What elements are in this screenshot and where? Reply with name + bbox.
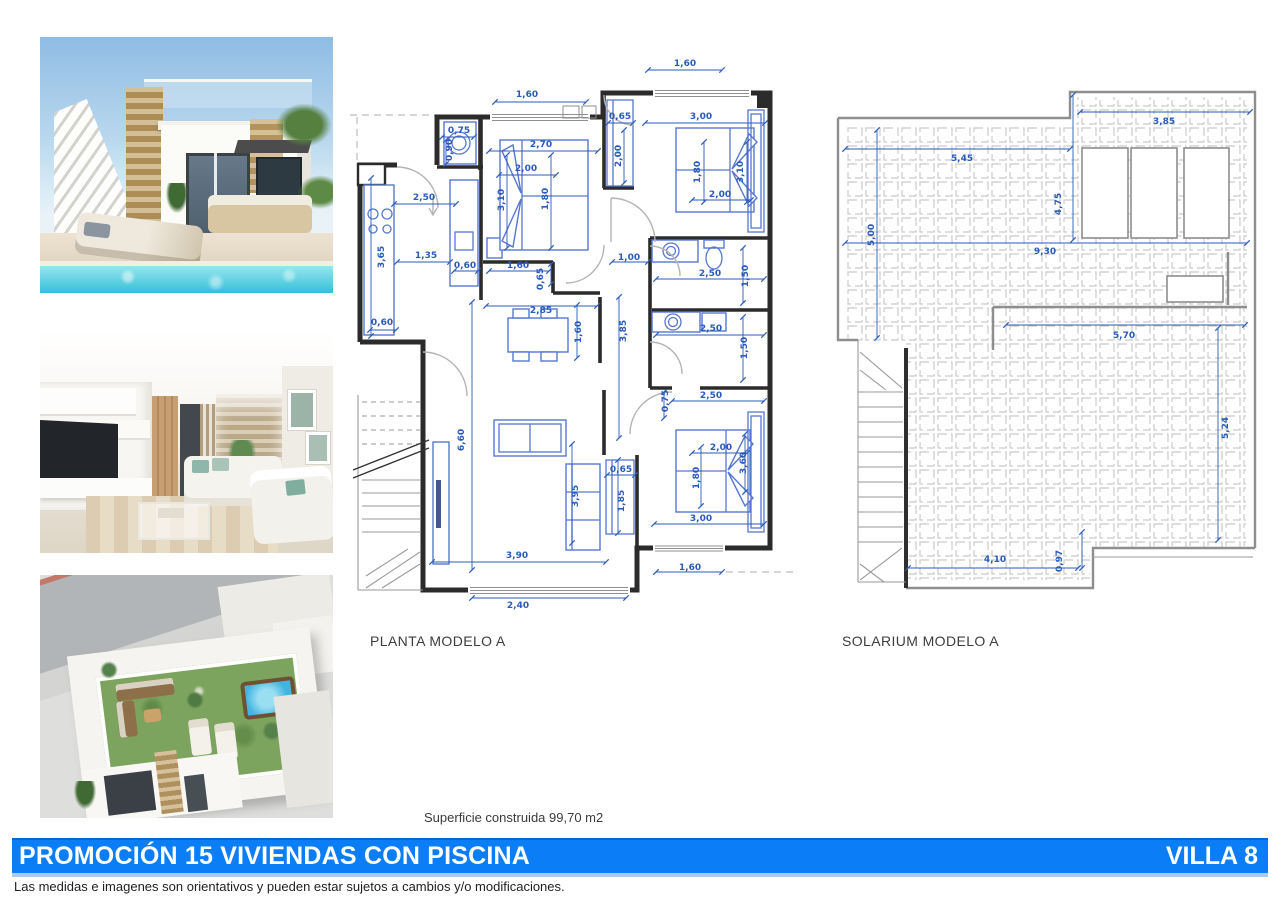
dimension-label: 0,60 — [454, 261, 476, 271]
pergola-panel — [1131, 148, 1177, 238]
window — [104, 770, 157, 816]
chimney-box — [1167, 276, 1223, 302]
dimension-label: 1,60 — [574, 321, 584, 343]
dimension-label: 0,75 — [448, 126, 470, 136]
sofa — [494, 420, 566, 456]
door — [184, 774, 208, 812]
dimension-label: 3,85 — [619, 320, 629, 342]
ledge-mask — [1090, 549, 1253, 583]
dimension-label: 2,50 — [413, 193, 435, 203]
pillow — [83, 221, 111, 238]
corner-pillar — [757, 93, 771, 108]
pergola-panel — [1184, 148, 1229, 238]
solarium-plan: 3,855,454,755,009,305,705,244,100,97 — [830, 80, 1275, 610]
pillow — [285, 479, 305, 496]
dimension-label: 1,80 — [693, 161, 703, 183]
dimension-label: 2,00 — [614, 145, 624, 167]
dimension-label: 4,75 — [1054, 193, 1064, 215]
dimension-label: 3,00 — [690, 514, 712, 524]
dimension-label: 2,00 — [709, 190, 731, 200]
dimension-label: 1,60 — [507, 261, 529, 271]
wood-panel — [152, 396, 178, 506]
dimension-label: 2,85 — [530, 306, 552, 316]
photo-villa-exterior-pool — [40, 37, 333, 293]
dimension-label: 1,80 — [541, 188, 551, 210]
planta-title: PLANTA MODELO A — [370, 633, 506, 649]
dimension-label: 3,00 — [690, 112, 712, 122]
dimension-label: 9,30 — [1034, 247, 1056, 257]
dimension-label: 0,90 — [445, 139, 455, 161]
dimension-label: 3,95 — [571, 485, 581, 507]
plant — [100, 661, 118, 679]
dimension-label: 3,85 — [1153, 117, 1175, 127]
picture-frame — [288, 390, 316, 430]
solarium-drawing: 3,855,454,755,009,305,705,244,100,97 — [830, 80, 1275, 610]
stone-pillar — [126, 87, 163, 237]
pillow — [212, 458, 229, 471]
photo-roof-terrace-aerial — [40, 575, 333, 818]
built-area-label: Superficie construida 99,70 m2 — [424, 810, 603, 825]
dimension-label: 1,60 — [679, 563, 701, 573]
dimension-label: 5,00 — [867, 224, 877, 246]
bathroom-fixtures — [652, 240, 724, 269]
dimension-label: 5,45 — [951, 154, 973, 164]
dimension-label: 2,70 — [530, 140, 552, 150]
wall-pillar — [358, 164, 385, 185]
decor — [158, 508, 184, 518]
dimension-label: 0,60 — [371, 318, 393, 328]
promotion-title: PROMOCIÓN 15 VIVIENDAS CON PISCINA — [12, 842, 530, 871]
dimension-label: 1,35 — [415, 251, 437, 261]
dimension-label: 0,97 — [1055, 550, 1065, 572]
television — [40, 420, 118, 482]
plant — [186, 691, 204, 709]
disclaimer-text: Las medidas e imagenes son orientativos … — [14, 879, 565, 894]
dimension-label: 2,00 — [710, 443, 732, 453]
exterior-stairs — [353, 395, 429, 590]
dimension-label: 3,90 — [506, 551, 528, 561]
dimension-label: 1,60 — [516, 90, 538, 100]
dimension-label: 2,00 — [515, 164, 537, 174]
dimension-label: 1,85 — [617, 490, 627, 512]
dimension-label: 1,60 — [674, 59, 696, 69]
dimension-label: 0,65 — [536, 268, 546, 290]
tv — [436, 480, 441, 528]
dimension-label: 0,65 — [610, 465, 632, 475]
dimension-label: 5,70 — [1113, 331, 1135, 341]
pergola-panel — [1082, 148, 1128, 238]
wall-cabinet — [40, 388, 136, 416]
pillow — [192, 460, 209, 473]
dimension-label: 2,50 — [700, 324, 722, 334]
dimension-label: 3,10 — [497, 189, 507, 211]
solarium-stairs — [858, 340, 906, 582]
dimension-label: 5,24 — [1221, 417, 1231, 439]
tiled-terrace — [906, 343, 1246, 580]
dimension-label: 4,10 — [984, 555, 1006, 565]
palm-tree — [276, 103, 332, 147]
outdoor-sofa — [208, 195, 312, 233]
photo-living-room-interior — [40, 330, 333, 553]
plant — [74, 781, 96, 809]
dimension-label: 1,80 — [692, 467, 702, 489]
solarium-title: SOLARIUM MODELO A — [842, 633, 999, 649]
sofa — [250, 465, 333, 544]
dimension-label: 2,50 — [699, 269, 721, 279]
dimension-label: 1,50 — [741, 265, 751, 287]
swimming-pool — [40, 266, 333, 293]
floor-plan-drawing: 1,601,600,750,902,702,003,101,800,653,00… — [350, 55, 805, 620]
dining-table — [508, 309, 568, 361]
lowboard — [40, 478, 152, 498]
dimension-label: 1,00 — [618, 253, 640, 263]
ottoman — [143, 708, 161, 723]
dimension-label: 0,65 — [609, 112, 631, 122]
dimension-label: 0,75 — [661, 390, 671, 412]
dimension-label: 2,40 — [507, 601, 529, 611]
dimension-label: 6,60 — [457, 429, 467, 451]
dimension-label: 3,60 — [739, 452, 749, 474]
villa-number: VILLA 8 — [1166, 842, 1268, 871]
dimension-label: 3,10 — [736, 161, 746, 183]
plant — [166, 183, 188, 213]
dimension-label: 1,50 — [740, 337, 750, 359]
dimension-label: 2,50 — [700, 391, 722, 401]
promotion-banner: PROMOCIÓN 15 VIVIENDAS CON PISCINA VILLA… — [12, 838, 1268, 877]
dimension-label: 3,65 — [377, 246, 387, 268]
sun-lounger — [188, 718, 212, 756]
floor-plan-planta: 1,601,600,750,902,702,003,101,800,653,00… — [350, 55, 805, 620]
picture-frame — [306, 432, 330, 464]
